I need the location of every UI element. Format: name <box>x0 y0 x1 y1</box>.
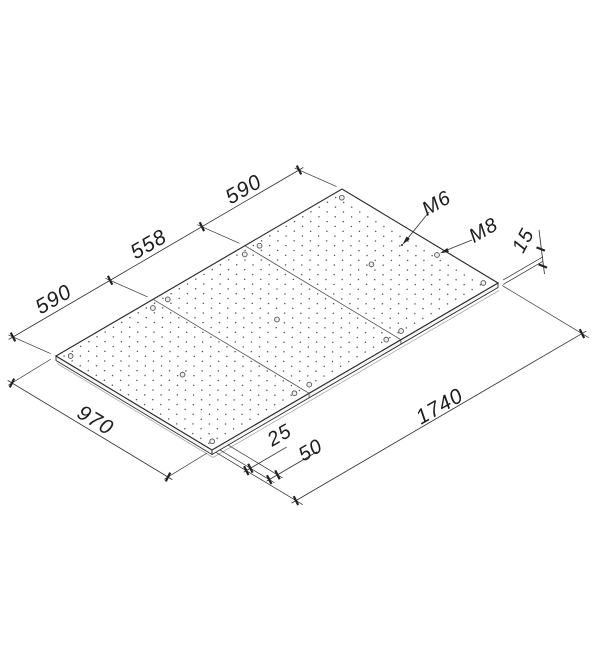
isometric-plate-drawing <box>0 0 600 658</box>
technical-drawing: 590 558 590 M6 M8 15 970 1740 25 50 <box>0 0 600 658</box>
